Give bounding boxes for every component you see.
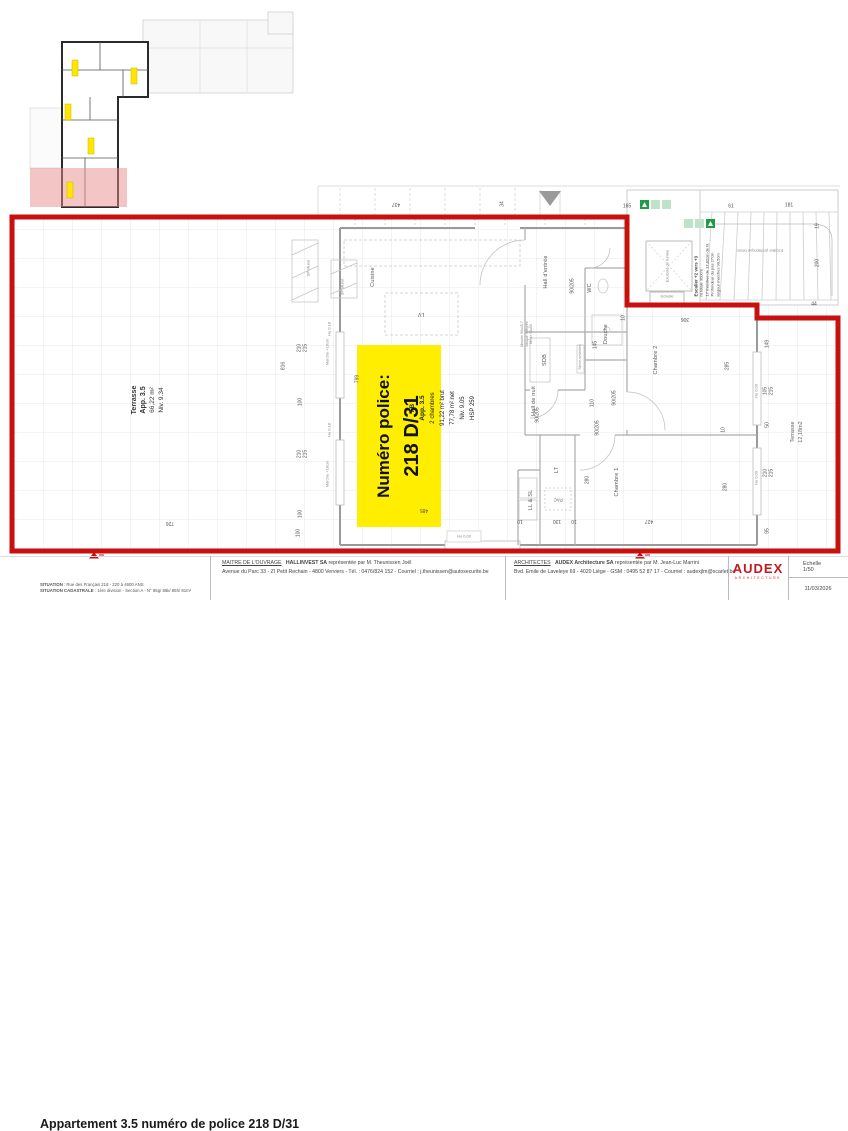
- dimension-label: 34: [500, 201, 506, 207]
- hu000-annotation: Hu 0.00: [755, 384, 760, 398]
- dimension-label: 280: [723, 483, 729, 491]
- dimension-label: 95: [765, 528, 771, 534]
- stair-note-line: Profondeur du pas 27cm: [710, 253, 715, 297]
- police-label-line1: Numéro police:: [374, 374, 394, 498]
- mini-police-label: [67, 182, 73, 198]
- dimension-label: 44: [811, 302, 817, 308]
- dimension-label: 130: [553, 517, 561, 523]
- dimension-label: 10: [517, 517, 523, 523]
- dimension-label: 10: [571, 517, 577, 523]
- cadastrale-line: SITUATION CADASTRALE : 1ère division - S…: [40, 588, 191, 593]
- room-label-chambre2: Chambre 2: [653, 345, 659, 374]
- dimension-label: 726: [166, 519, 174, 525]
- dimension-label: 181: [785, 203, 793, 209]
- dimension-label: 437: [392, 200, 400, 206]
- maitre-ouvrage-label: MAITRE DE L'OUVRAGE: [222, 560, 282, 566]
- stair-note-line: ht totale 300cm: [699, 269, 704, 296]
- titleblock-divider: [210, 556, 211, 600]
- dimension-label: 306: [681, 315, 689, 321]
- cadastrale-label: SITUATION CADASTRALE: [40, 588, 94, 593]
- terrace-right-line: 12,18m2: [798, 421, 804, 442]
- titleblock-divider: [505, 556, 506, 600]
- dimension-label: 427: [645, 517, 653, 523]
- room-label-lv: LV: [418, 311, 425, 317]
- maitre-ouvrage-name: HALLINVEST SA: [286, 560, 327, 566]
- terrace-right-line: Terrasse: [790, 421, 796, 442]
- dimension-label: 100: [296, 529, 302, 537]
- sdb-note-line: Meuble 90x45,7: [520, 321, 524, 347]
- dimension-label: 485: [420, 506, 428, 512]
- dimension-label: 210 215: [298, 344, 309, 352]
- apt-info-line: 77,78 m² net: [450, 391, 456, 425]
- architectes-rest: représentée par M. Jean-Luc Marrini: [614, 560, 699, 566]
- echelle-label: Echelle: [660, 295, 673, 300]
- dimension-label: 100: [298, 398, 304, 406]
- hu018-annotation: Hu 0.18: [328, 322, 333, 336]
- dimension-label: 280: [585, 476, 591, 484]
- north-marker: [539, 191, 561, 206]
- stair-precast-label: Escalier préfabriqué béton: [737, 248, 784, 253]
- exit-sign-icon: [651, 200, 660, 209]
- sp-muret-annotation: SP Muret: [307, 260, 312, 277]
- dimension-label: 165: [623, 204, 631, 210]
- architectes-line: ARCHITECTES AUDEX Architecture SA représ…: [514, 560, 699, 566]
- mini-police-label: [72, 60, 78, 76]
- maitre-ouvrage-address: Avenue du Parc 33 - ZI Petit Rechain - 4…: [222, 569, 489, 575]
- dimension-label: 145: [593, 341, 599, 349]
- terrace-left-line: App. 3.5: [140, 386, 147, 413]
- terrace-murets: [292, 240, 357, 302]
- architectes-label: ARCHITECTES: [514, 560, 551, 566]
- maitre-ouvrage-line: MAITRE DE L'OUVRAGE HALLINVEST SA représ…: [222, 560, 411, 566]
- apartment-info: I.B App. 3.5 2 chambres 91,22 m² brut 77…: [408, 390, 478, 426]
- dimension-label: 90/205: [570, 278, 576, 293]
- stair-note-line: largeur marches 90,5cm: [715, 253, 720, 296]
- terrace-right-label: Terrasse 12,18m2: [789, 421, 805, 442]
- exit-sign-icon: [684, 219, 693, 228]
- exit-sign-icon: [695, 219, 704, 228]
- smoke-vent-label: Exutoire de fumée: [666, 250, 671, 282]
- dimension-label: 816: [281, 362, 287, 370]
- dimension-label: 90/205: [612, 390, 618, 405]
- sdb-note-line: Miroir 90x65: [529, 324, 533, 344]
- dimension-label: 10: [621, 315, 627, 321]
- dimension-label: 50: [765, 422, 771, 428]
- date-label: 11/03/2026: [804, 586, 831, 592]
- terrace-left-line: Terrasse: [131, 386, 138, 415]
- scale-label: Echelle 1/50: [803, 561, 833, 573]
- audex-logo-text: AUDEX: [733, 561, 784, 576]
- apt-info-line: 91,22 m² brut: [440, 390, 446, 426]
- apt-info-line: Niv. 9.05: [460, 396, 466, 419]
- dimension-label: 285: [725, 362, 731, 370]
- marche-annotation: Marche +18cm: [326, 339, 331, 366]
- dimension-label: 19: [815, 223, 821, 229]
- audex-logo-subtext: ARCHITECTURE: [733, 577, 784, 580]
- apt-info-line: 2 chambres: [430, 392, 436, 423]
- dimension-label: 799: [355, 375, 361, 383]
- exit-sign-icon: [662, 200, 671, 209]
- dimension-label: 149: [765, 340, 771, 348]
- dimension-label: 200: [815, 259, 821, 267]
- stair-note-title: Escalier +2 vers +3: [693, 256, 698, 297]
- mini-police-label: [65, 104, 71, 120]
- room-label-chambre1: Chambre 1: [614, 467, 620, 496]
- situation-value: : Rue des Français 218 - 220 à 4600 ANS: [63, 582, 144, 587]
- dimension-label: 100: [298, 510, 304, 518]
- titleblock-divider: [788, 556, 789, 600]
- room-label-pac: PAC: [553, 497, 563, 502]
- room-label-douche: Douche: [603, 324, 609, 344]
- cadastrale-value: : 1ère division - Section A - N° 85g/ 85…: [94, 588, 192, 593]
- apt-info-line: I.B: [409, 404, 416, 412]
- police-number-label: Numéro police: 218 D/31: [357, 345, 441, 527]
- dimension-label: 90/205: [595, 420, 601, 435]
- stair-note: Escalier +2 vers +3 ht totale 300cm 17 m…: [693, 244, 720, 297]
- hu000-annotation: Hu 0.00: [755, 471, 760, 485]
- situation-label: SITUATION: [40, 582, 63, 587]
- room-label-ll-sl: LL & SL: [528, 490, 534, 511]
- stair-note-line: 17 marches de 17,82cm de ht: [704, 244, 709, 297]
- situation-line: SITUATION : Rue des Français 218 - 220 à…: [40, 582, 144, 587]
- room-label-sdb: SDB: [542, 354, 548, 366]
- marche-annotation: Marche +18cm: [326, 461, 331, 488]
- mini-police-label: [88, 138, 94, 154]
- sdb-note-line: vasque intégrée: [525, 321, 529, 347]
- plan-sheet: { "colors": { "boundary_red": "#c8100e",…: [0, 0, 848, 600]
- scale-cell-divider: [789, 577, 848, 578]
- audex-logo: AUDEX ARCHITECTURE: [733, 562, 784, 580]
- terrace-left-line: Niv. 9.34: [158, 387, 165, 412]
- wc-fixture: [598, 279, 608, 293]
- maitre-ouvrage-rest: représentée par M. Theunissen Joël: [327, 560, 411, 566]
- sp-muret-annotation: SP Muret: [341, 279, 346, 296]
- dimension-label: 105 215: [764, 387, 775, 395]
- terrace-left-label: Terrasse App. 3.5 66,22 m² Niv. 9.34: [130, 386, 166, 415]
- hu000-annotation: Hu 0.00: [457, 535, 471, 540]
- apt-info-line: App. 3.5: [419, 395, 426, 420]
- terrace-left-line: 66,22 m²: [149, 387, 156, 413]
- dimension-label: 110: [590, 399, 596, 407]
- room-label-hall-entree: Hall d'entrée: [543, 255, 549, 288]
- hu018-annotation: Hu 0.18: [328, 423, 333, 437]
- dimension-label: 90/205: [535, 407, 541, 422]
- seche-serviettes-annotation: Sèche-serviettes: [579, 344, 583, 369]
- title-block: Appartement 3.5 numéro de police 218 D/3…: [0, 556, 848, 601]
- sdb-note: Meuble 90x45,7 vasque intégrée Miroir 90…: [520, 321, 534, 347]
- architectes-name: AUDEX Architecture SA: [555, 560, 614, 566]
- dimension-label: 210 215: [298, 450, 309, 458]
- sheet-title: Appartement 3.5 numéro de police 218 D/3…: [40, 1117, 299, 1131]
- mini-police-label: [131, 68, 137, 84]
- room-label-lt: LT: [554, 467, 560, 473]
- mini-plan: [30, 12, 293, 207]
- room-label-cuisine: Cuisine: [370, 267, 376, 287]
- titleblock-divider: [728, 556, 729, 600]
- dimension-label: 210 215: [764, 469, 775, 477]
- architectes-address: Bvd. Emile de Laveleye 69 - 4020 Liège -…: [514, 569, 735, 575]
- room-label-wc: WC: [587, 283, 593, 293]
- apt-info-line: HSP 259: [470, 396, 476, 420]
- dimension-label: 61: [728, 204, 734, 210]
- dimension-label: 10: [721, 427, 727, 433]
- mini-plan-highlight-zone: [30, 168, 127, 207]
